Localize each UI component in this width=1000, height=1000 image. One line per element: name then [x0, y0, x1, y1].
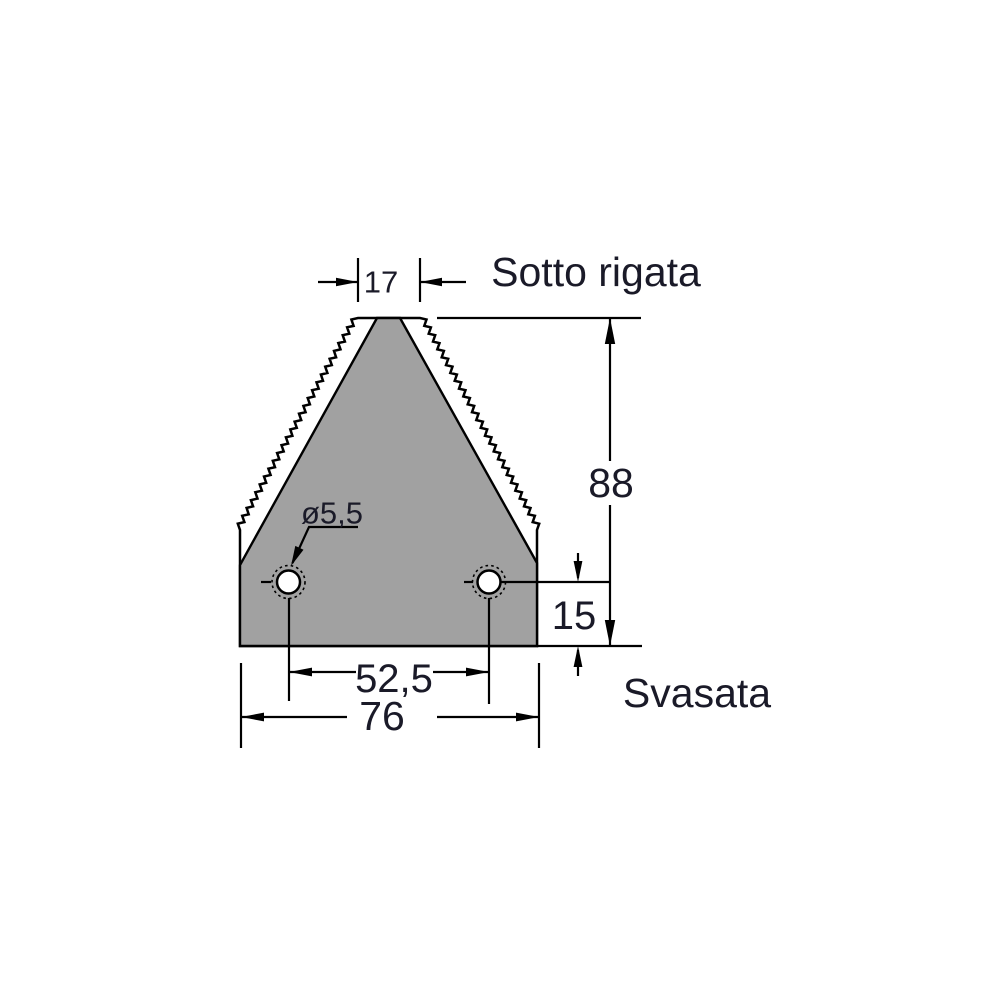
- arrowhead-icon: [241, 713, 264, 722]
- label-svasata: Svasata: [623, 670, 771, 716]
- dim-top-width: 17: [318, 258, 466, 302]
- arrowhead-icon: [420, 278, 442, 287]
- dim-value-hole-height: 15: [552, 594, 597, 638]
- dim-value-total-height: 88: [588, 460, 634, 506]
- arrowhead-icon: [574, 561, 583, 582]
- arrowhead-icon: [605, 620, 615, 646]
- dim-value-top-width: 17: [364, 265, 398, 300]
- arrowhead-icon: [336, 278, 358, 287]
- dim-value-base-width: 76: [359, 693, 405, 739]
- arrowhead-icon: [574, 646, 583, 667]
- hole-right: [478, 571, 501, 594]
- arrowhead-icon: [466, 668, 489, 677]
- hole-left: [277, 571, 300, 594]
- technical-drawing-canvas: 17 88 15 52,5 76: [0, 0, 1000, 1000]
- arrowhead-icon: [605, 318, 615, 344]
- dim-value-hole-diameter: ø5,5: [301, 496, 363, 531]
- arrowhead-icon: [516, 713, 539, 722]
- label-sotto-rigata: Sotto rigata: [491, 249, 701, 295]
- arrowhead-icon: [289, 668, 312, 677]
